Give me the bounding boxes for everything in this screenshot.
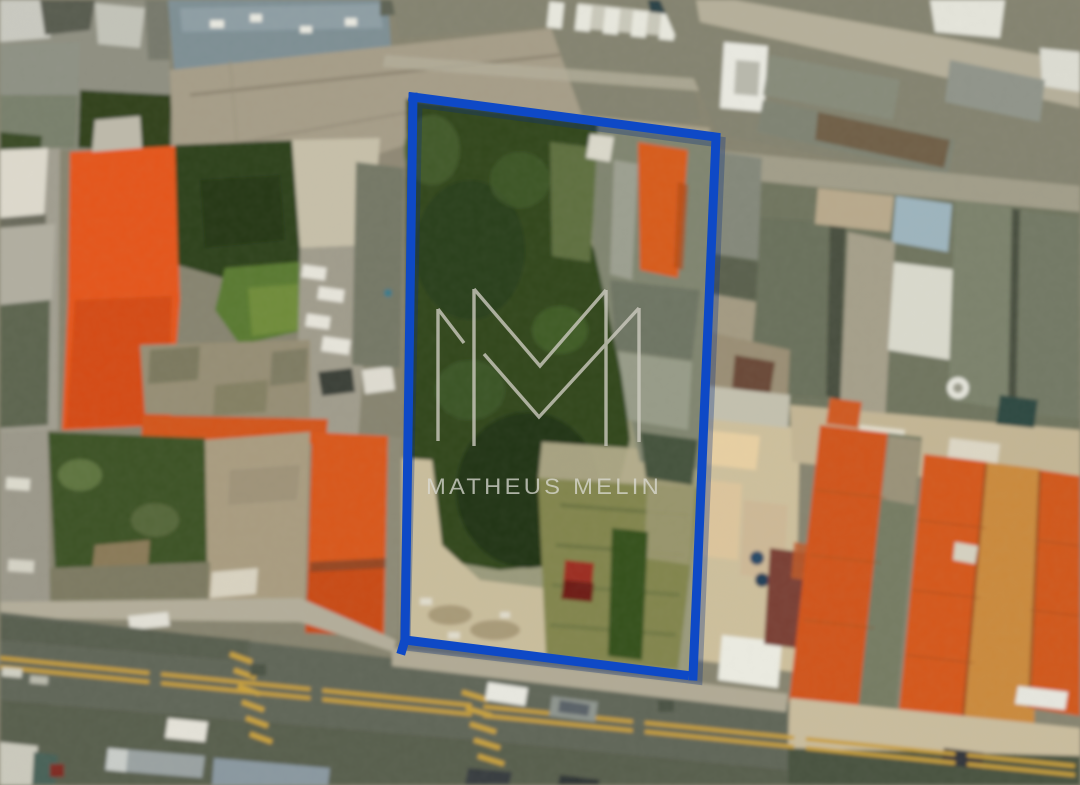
svg-text:MATHEUS MELIN: MATHEUS MELIN bbox=[426, 474, 662, 499]
